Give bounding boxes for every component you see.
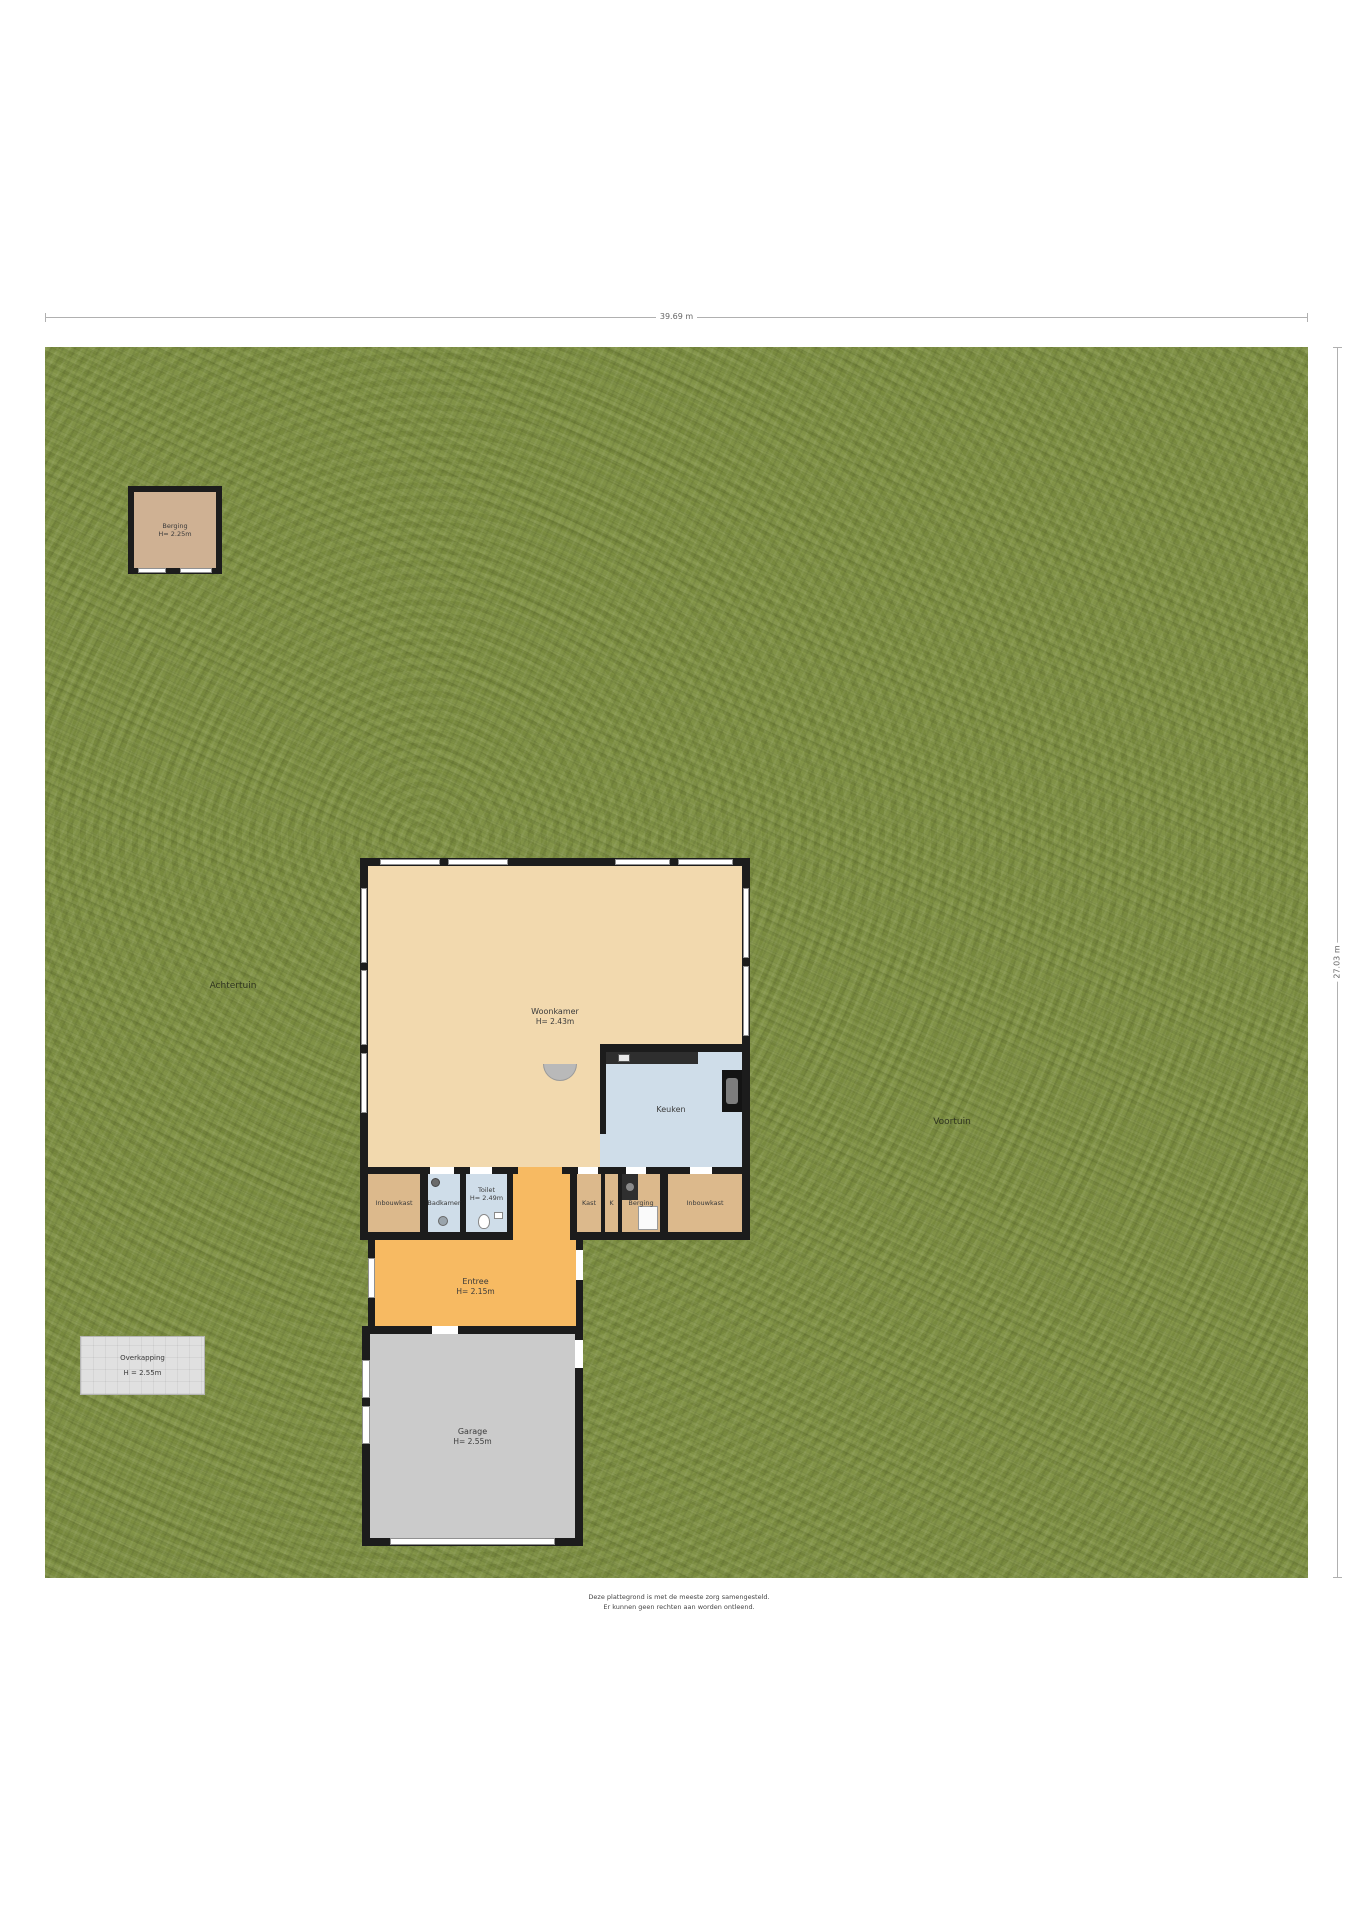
sink-fixture <box>438 1216 448 1226</box>
shed-height-label: H= 2.25m <box>158 530 191 538</box>
front-door-opening <box>576 1250 583 1280</box>
corridor-opening <box>518 1167 562 1174</box>
oven-appliance <box>722 1070 742 1112</box>
achtertuin-label: Achtertuin <box>153 981 313 991</box>
overkapping-name-label: Overkapping <box>120 1353 165 1364</box>
toilet-height-label: H= 2.49m <box>470 1194 503 1202</box>
garage-name-label: Garage <box>458 1426 487 1437</box>
window <box>361 888 367 963</box>
window <box>380 859 440 865</box>
room-garage: Garage H= 2.55m <box>370 1334 575 1538</box>
height-dimension-label: 27.03 m <box>1332 942 1343 981</box>
dimension-tick <box>1333 347 1342 348</box>
garage-door <box>390 1538 555 1545</box>
room-k-closet: K <box>605 1174 618 1232</box>
kast-label: Kast <box>582 1199 596 1207</box>
side-door-opening <box>575 1340 583 1368</box>
overkapping-structure: Overkapping H = 2.55m <box>80 1336 205 1395</box>
keuken-name-label: Keuken <box>656 1104 685 1115</box>
garage-block: Garage H= 2.55m <box>362 1326 583 1546</box>
garage-height-label: H= 2.55m <box>453 1437 491 1447</box>
dimension-tick <box>1333 1577 1342 1578</box>
width-dimension-label: 39.69 m <box>45 312 1308 321</box>
window <box>678 859 733 865</box>
shed-floor: Berging H= 2.25m <box>134 492 216 568</box>
room-inbouwkast-left: Inbouwkast <box>368 1174 420 1232</box>
window <box>615 859 670 865</box>
door-opening <box>578 1167 598 1174</box>
kitchen-sink <box>618 1054 630 1062</box>
door-opening <box>626 1167 646 1174</box>
window <box>180 568 212 573</box>
corridor-opening <box>513 1232 570 1240</box>
window <box>743 966 749 1036</box>
room-inbouwkast-right: Inbouwkast <box>668 1174 742 1232</box>
overkapping-height-label: H = 2.55m <box>124 1368 162 1378</box>
room-entree: Entree H= 2.15m <box>375 1240 576 1333</box>
inbouwkast-right-label: Inbouwkast <box>686 1199 723 1207</box>
entree-wing: Entree H= 2.15m <box>368 1240 583 1333</box>
window <box>368 1258 375 1298</box>
toilet-fixture <box>478 1214 490 1229</box>
shed-berging: Berging H= 2.25m <box>128 486 222 574</box>
window <box>448 859 508 865</box>
window <box>138 568 166 573</box>
door-opening <box>470 1167 492 1174</box>
berging-inside-label: Berging <box>628 1199 653 1207</box>
shed-name-label: Berging <box>162 522 187 530</box>
window <box>743 888 749 958</box>
door-opening <box>690 1167 712 1174</box>
room-badkamer: Badkamer <box>428 1174 460 1232</box>
entree-name-label: Entree <box>462 1276 488 1287</box>
window <box>361 1053 367 1113</box>
disclaimer-line2: Er kunnen geen rechten aan worden ontlee… <box>0 1602 1358 1612</box>
oven-door <box>726 1078 738 1104</box>
entree-corridor <box>513 1174 570 1232</box>
disclaimer: Deze plattegrond is met de meeste zorg s… <box>0 1592 1358 1612</box>
voortuin-label: Voortuin <box>872 1117 1032 1127</box>
house-main-block: Woonkamer H= 2.43m Keuken Inbouwkast Bad… <box>360 858 750 1240</box>
door-opening <box>432 1326 458 1334</box>
toilet-name-label: Toilet <box>478 1186 495 1194</box>
window <box>361 970 367 1045</box>
washer-appliance <box>622 1174 638 1200</box>
floorplan-canvas: 39.69 m 27.03 m Achtertuin Voortuin Berg… <box>0 0 1358 1920</box>
badkamer-label: Badkamer <box>427 1199 460 1207</box>
boiler-fixture <box>638 1206 658 1230</box>
room-kast: Kast <box>577 1174 601 1232</box>
keuken-top-wall <box>600 1044 742 1052</box>
room-toilet: Toilet H= 2.49m <box>466 1174 507 1232</box>
shower-head-fixture <box>431 1178 440 1187</box>
woonkamer-name-label: Woonkamer <box>531 1006 579 1017</box>
room-berging-inside: Berging <box>622 1174 660 1232</box>
washer-door <box>626 1183 634 1191</box>
entree-height-label: H= 2.15m <box>456 1287 494 1297</box>
k-closet-label: K <box>609 1199 613 1207</box>
disclaimer-line1: Deze plattegrond is met de meeste zorg s… <box>0 1592 1358 1602</box>
window <box>362 1406 370 1444</box>
room-keuken: Keuken <box>600 1052 742 1167</box>
door-opening <box>430 1167 454 1174</box>
woonkamer-height-label: H= 2.43m <box>536 1017 574 1027</box>
window <box>362 1360 370 1398</box>
inbouwkast-left-label: Inbouwkast <box>375 1199 412 1207</box>
toilet-sink-fixture <box>494 1212 503 1219</box>
